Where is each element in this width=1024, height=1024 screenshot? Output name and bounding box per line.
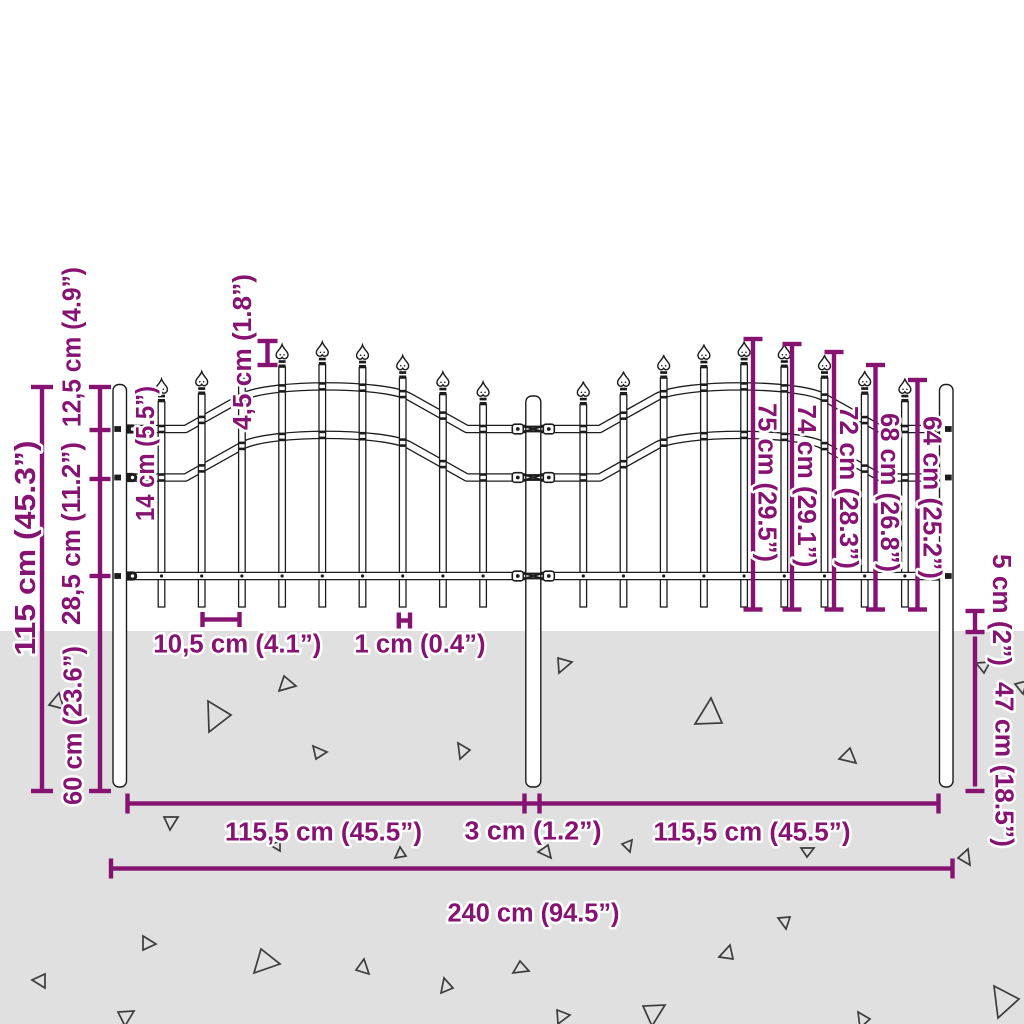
- svg-text:14 cm (5.5”): 14 cm (5.5”): [132, 386, 160, 521]
- svg-text:115,5 cm (45.5”): 115,5 cm (45.5”): [654, 819, 851, 847]
- svg-text:72 cm (28.3”): 72 cm (28.3”): [834, 406, 862, 569]
- svg-text:68 cm (26.8”): 68 cm (26.8”): [875, 413, 903, 572]
- svg-text:3 cm (1.2”): 3 cm (1.2”): [465, 818, 602, 846]
- svg-text:5 cm (2”): 5 cm (2”): [987, 554, 1015, 666]
- svg-text:60 cm (23.6”): 60 cm (23.6”): [60, 646, 88, 805]
- svg-text:28,5 cm (11.2”): 28,5 cm (11.2”): [58, 442, 86, 625]
- svg-text:74 cm (29.1”): 74 cm (29.1”): [792, 405, 820, 568]
- svg-text:47 cm (18.5”): 47 cm (18.5”): [990, 682, 1018, 847]
- svg-text:115 cm (45.3”): 115 cm (45.3”): [10, 441, 42, 656]
- svg-text:64 cm (25.2”): 64 cm (25.2”): [918, 416, 946, 579]
- svg-text:4,5 cm (1.8”): 4,5 cm (1.8”): [229, 274, 257, 430]
- svg-text:10,5 cm (4.1”): 10,5 cm (4.1”): [153, 631, 321, 659]
- svg-text:240 cm (94.5”): 240 cm (94.5”): [448, 899, 620, 927]
- svg-text:115,5 cm (45.5”): 115,5 cm (45.5”): [225, 819, 422, 847]
- svg-text:75 cm (29.5”): 75 cm (29.5”): [752, 403, 780, 562]
- svg-text:12,5 cm (4.9”): 12,5 cm (4.9”): [59, 267, 87, 427]
- svg-text:1 cm (0.4”): 1 cm (0.4”): [355, 631, 486, 659]
